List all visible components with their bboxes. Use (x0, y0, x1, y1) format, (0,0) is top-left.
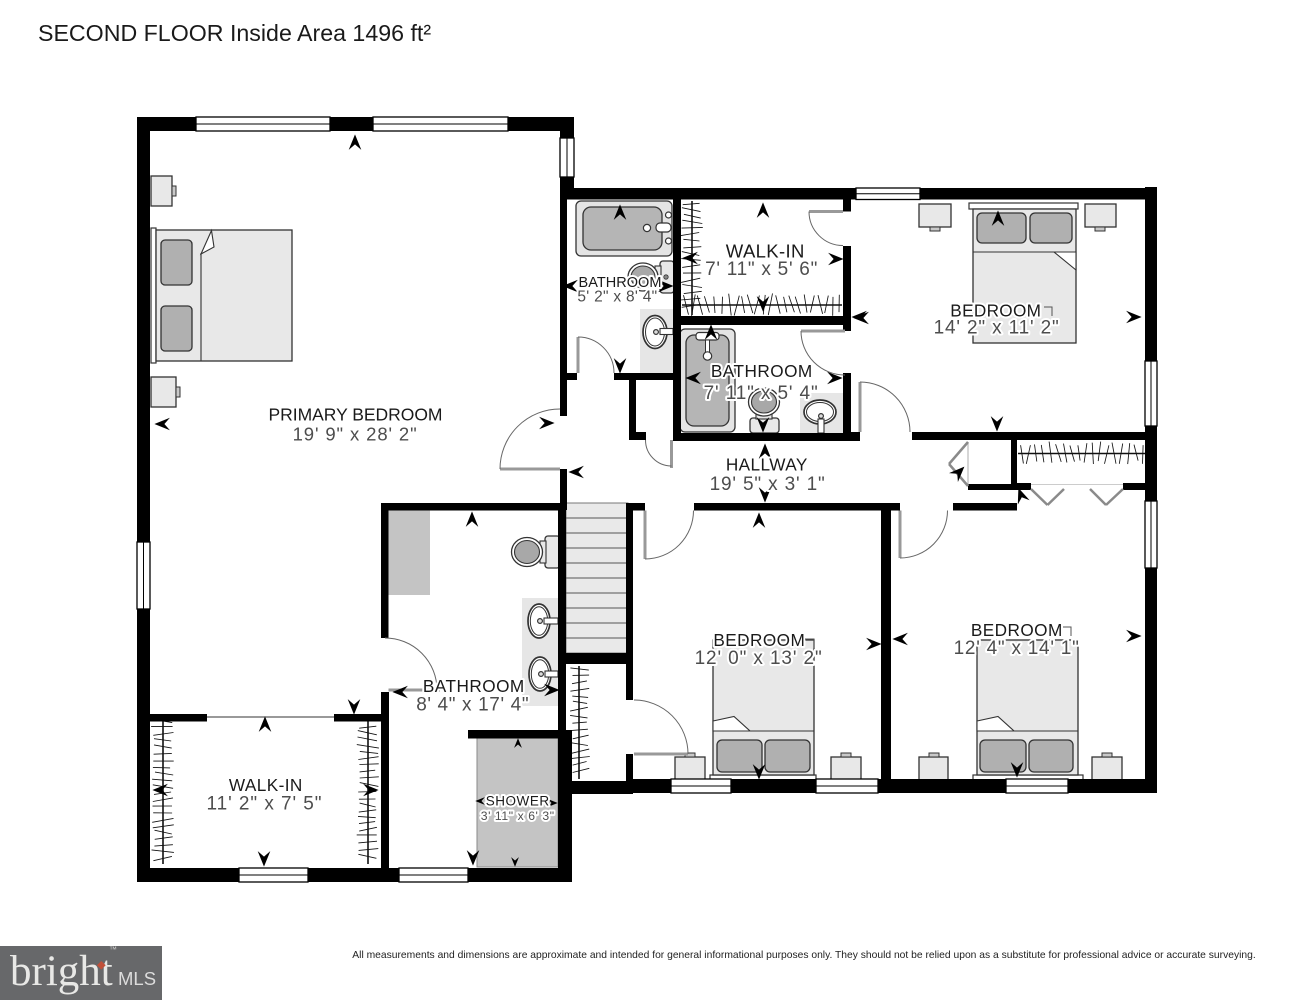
svg-text:™: ™ (109, 945, 117, 954)
svg-text:19' 5" x 3' 1": 19' 5" x 3' 1" (710, 474, 826, 495)
svg-text:7' 11" x 5' 6": 7' 11" x 5' 6" (705, 259, 818, 280)
svg-text:11' 2" x 7' 5": 11' 2" x 7' 5" (207, 794, 323, 815)
svg-text:BEDROOM: BEDROOM (971, 620, 1063, 640)
svg-text:19' 9" x 28' 2": 19' 9" x 28' 2" (293, 424, 418, 445)
svg-text:7' 11" x 5' 4": 7' 11" x 5' 4" (704, 383, 819, 404)
svg-text:bright: bright (10, 948, 113, 995)
svg-text:12' 0" x 13' 2": 12' 0" x 13' 2" (695, 648, 823, 669)
svg-text:5' 2" x 8' 4": 5' 2" x 8' 4" (577, 289, 657, 306)
svg-text:BATHROOM: BATHROOM (423, 676, 525, 696)
svg-text:All measurements and dimension: All measurements and dimensions are appr… (352, 950, 1255, 961)
svg-text:BATHROOM: BATHROOM (711, 361, 813, 381)
svg-text:8' 4" x 17' 4": 8' 4" x 17' 4" (416, 695, 529, 716)
svg-text:WALK-IN: WALK-IN (229, 775, 303, 795)
svg-text:BEDROOM: BEDROOM (713, 630, 805, 650)
svg-text:3' 11" x 6' 3": 3' 11" x 6' 3" (481, 809, 555, 823)
svg-text:14' 2" x 11' 2": 14' 2" x 11' 2" (934, 318, 1060, 339)
svg-text:MLS: MLS (118, 968, 156, 989)
svg-text:SECOND FLOOR Inside Area 1496: SECOND FLOOR Inside Area 1496 ft² (38, 20, 431, 46)
svg-text:PRIMARY BEDROOM: PRIMARY BEDROOM (269, 405, 443, 425)
svg-text:SHOWER: SHOWER (486, 794, 550, 809)
svg-text:12' 4" x 14' 1": 12' 4" x 14' 1" (954, 638, 1080, 659)
svg-text:HALLWAY: HALLWAY (726, 455, 808, 475)
